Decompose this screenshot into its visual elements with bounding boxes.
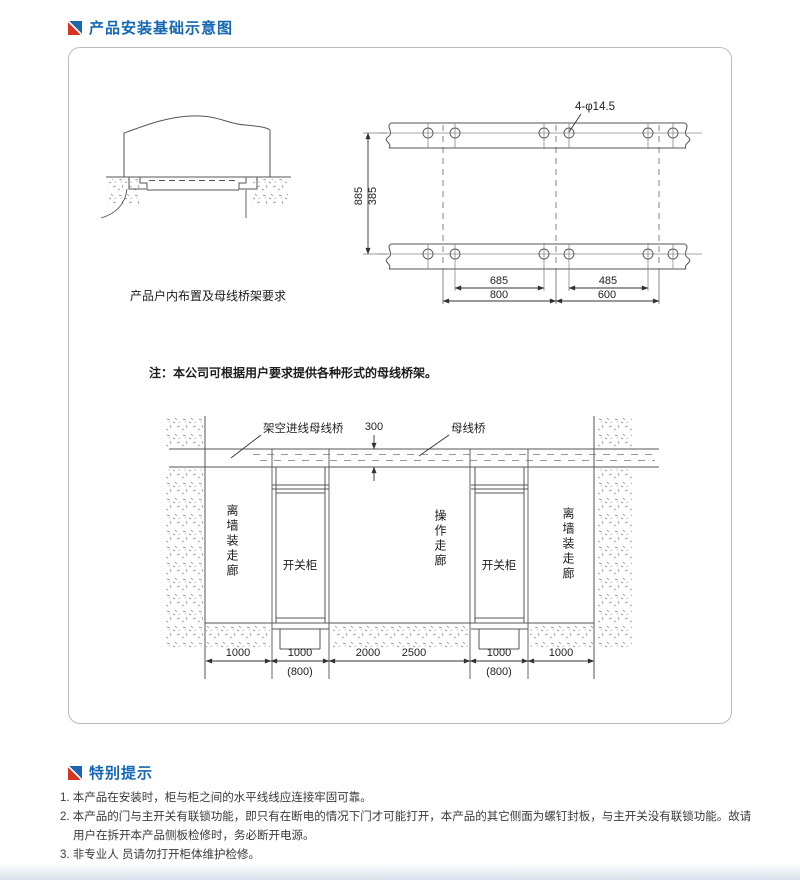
mounting-plan-drawing bbox=[363, 114, 702, 304]
section-flag-icon bbox=[68, 21, 82, 35]
elevation-dim-2000: 2000 bbox=[356, 647, 380, 659]
tip-note-3: 3. 非专业人 员请勿打开柜体维护检修。 bbox=[60, 846, 770, 865]
corridor-label-right: 离墙装走廊 bbox=[560, 507, 577, 582]
plan-dim-385: 385 bbox=[367, 187, 379, 205]
elevation-dim-1000-d: 1000 bbox=[549, 647, 573, 659]
cabinet-label-left: 开关柜 bbox=[279, 557, 321, 573]
tip-note-2-line-2: 用户在拆开本产品侧板检修时，务必断开电源。 bbox=[60, 827, 770, 846]
plan-dim-800: 800 bbox=[490, 289, 508, 301]
cabinet-label-right: 开关柜 bbox=[478, 557, 520, 573]
plan-dim-600: 600 bbox=[598, 289, 616, 301]
plan-dim-885: 885 bbox=[353, 187, 365, 205]
tips-section-title: 特别提示 bbox=[89, 762, 153, 783]
elevation-dim-300: 300 bbox=[365, 421, 383, 433]
elevation-dim-1000-c: 1000 bbox=[487, 647, 511, 659]
plan-holes-label: 4-φ14.5 bbox=[575, 101, 615, 113]
elevation-dim-800-c: (800) bbox=[486, 666, 512, 678]
tip-note-2-line-1: 2. 本产品的门与主开关有联锁功能，即只有在断电的情况下门才可能打开，本产品的其… bbox=[60, 808, 770, 827]
corridor-label-middle: 操作走廊 bbox=[432, 509, 449, 569]
elevation-dim-2500: 2500 bbox=[402, 647, 426, 659]
elevation-dim-1000-b: 1000 bbox=[288, 647, 312, 659]
installation-diagram-svg: 685 485 800 600 885 385 4-φ14.5 bbox=[69, 48, 731, 723]
elevation-dim-1000-a: 1000 bbox=[226, 647, 250, 659]
overhead-bus-label: 架空进线母线桥 bbox=[263, 421, 344, 435]
plan-dim-685: 685 bbox=[490, 275, 508, 287]
bus-bridge-label: 母线桥 bbox=[451, 421, 486, 435]
elevation-dim-800-b: (800) bbox=[287, 666, 313, 678]
section-flag-icon bbox=[68, 766, 82, 780]
bridge-note: 注：本公司可根据用户要求提供各种形式的母线桥架。 bbox=[149, 364, 437, 381]
corridor-label-left: 离墙装走廊 bbox=[224, 504, 241, 579]
section-header-install: 产品安装基础示意图 bbox=[68, 17, 233, 38]
install-section-title: 产品安装基础示意图 bbox=[89, 17, 233, 38]
bottom-fade bbox=[0, 864, 800, 880]
tips-notes: 1. 本产品在安装时，柜与柜之间的水平线线应连接牢固可靠。 2. 本产品的门与主… bbox=[60, 789, 770, 865]
plan-dim-485: 485 bbox=[599, 275, 617, 287]
detail-caption: 产品户内布置及母线桥架要求 bbox=[126, 287, 290, 304]
tip-note-1: 1. 本产品在安装时，柜与柜之间的水平线线应连接牢固可靠。 bbox=[60, 789, 770, 808]
diagram-panel: 685 485 800 600 885 385 4-φ14.5 bbox=[68, 47, 732, 724]
section-header-tips: 特别提示 bbox=[68, 762, 153, 783]
indoor-layout-drawing bbox=[101, 116, 291, 218]
